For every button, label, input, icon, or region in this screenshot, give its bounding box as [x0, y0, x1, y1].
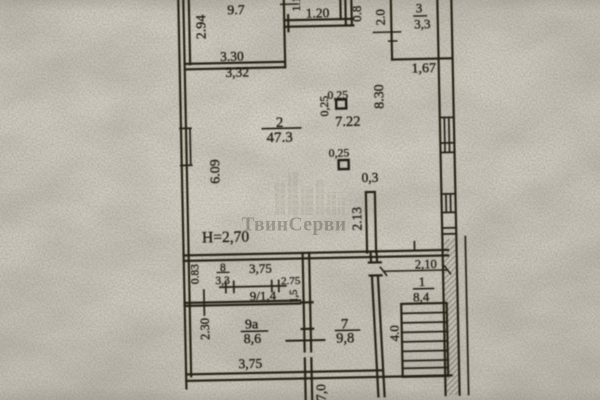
svg-text:3,75: 3,75	[238, 356, 262, 371]
svg-text:6.09: 6.09	[208, 159, 224, 184]
svg-text:7,0: 7,0	[313, 384, 328, 400]
svg-text:H=2,70: H=2,70	[202, 229, 250, 247]
svg-text:7.22: 7.22	[335, 114, 361, 131]
svg-text:9/1,4: 9/1,4	[250, 288, 277, 304]
svg-text:3.30: 3.30	[220, 49, 244, 64]
svg-text:0.83: 0.83	[189, 264, 201, 285]
svg-text:2.0: 2.0	[373, 9, 388, 26]
svg-text:0,3: 0,3	[361, 170, 378, 185]
svg-text:3,32: 3,32	[225, 65, 249, 80]
svg-text:1,67: 1,67	[411, 61, 436, 77]
svg-text:0.8: 0.8	[349, 5, 364, 22]
svg-text:8,6: 8,6	[244, 332, 262, 347]
svg-text:9.7: 9.7	[227, 3, 245, 18]
svg-text:47.3: 47.3	[266, 130, 293, 147]
svg-text:2,10: 2,10	[415, 257, 437, 271]
svg-text:0,25: 0,25	[317, 96, 331, 117]
svg-text:2.94: 2.94	[194, 15, 210, 40]
svg-text:2.30: 2.30	[198, 318, 212, 340]
svg-text:1.20: 1.20	[306, 5, 330, 20]
svg-text:3,75: 3,75	[249, 261, 272, 276]
svg-text:1: 1	[419, 274, 426, 289]
svg-text:3: 3	[416, 0, 423, 15]
svg-text:2.75: 2.75	[281, 275, 301, 287]
svg-text:ТвинСерви: ТвинСерви	[241, 215, 346, 236]
svg-text:4.0: 4.0	[387, 325, 402, 342]
svg-text:3,3: 3,3	[215, 275, 230, 287]
svg-text:0,25: 0,25	[329, 145, 350, 159]
svg-text:8.30: 8.30	[372, 84, 388, 109]
svg-text:1,5: 1,5	[289, 289, 300, 302]
svg-text:9,8: 9,8	[336, 330, 354, 346]
svg-text:8,4: 8,4	[413, 289, 430, 304]
svg-text:1.1: 1.1	[289, 0, 303, 12]
svg-text:3,3: 3,3	[414, 16, 431, 31]
svg-text:2.13: 2.13	[349, 207, 364, 231]
